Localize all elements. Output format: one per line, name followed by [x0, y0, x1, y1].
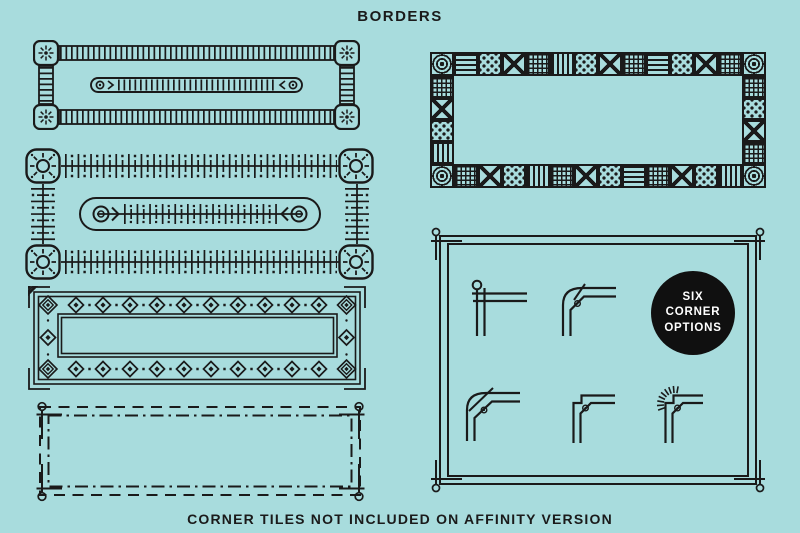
dots-tile — [742, 98, 766, 120]
dots-tile — [598, 164, 622, 188]
hstripe-tile — [454, 52, 478, 76]
dots-tile — [430, 120, 454, 142]
x-tile — [670, 164, 694, 188]
hstripe-tile — [622, 164, 646, 188]
tile-col-right — [742, 76, 766, 164]
x-tile — [430, 98, 454, 120]
dots-tile — [670, 52, 694, 76]
curved-spur-corner-icon — [457, 380, 527, 450]
grid-tile — [430, 76, 454, 98]
footer-note: CORNER TILES NOT INCLUDED ON AFFINITY VE… — [0, 511, 800, 527]
x-tile — [502, 52, 526, 76]
hstripe-tile — [646, 52, 670, 76]
x-tile — [574, 164, 598, 188]
page-title: BORDERS — [0, 8, 800, 25]
borders-poster: BORDERS — [0, 0, 800, 533]
bullseye-tile — [742, 164, 766, 188]
bullseye-tile — [430, 52, 454, 76]
grid-tile — [742, 142, 766, 164]
sunray-chamfer-corner-icon — [640, 378, 710, 448]
dots-tile — [574, 52, 598, 76]
x-tile — [478, 164, 502, 188]
vstripe-tile — [718, 164, 742, 188]
tile-col-left — [430, 76, 454, 164]
six-corner-options-badge: SIX CORNER OPTIONS — [651, 271, 735, 355]
rounded-chamfer-corner-icon — [553, 275, 623, 345]
badge-line-1: SIX — [683, 290, 704, 306]
panel-frame-border-icon — [428, 226, 768, 494]
vstripe-tile — [526, 164, 550, 188]
diamond-motif-border-icon — [28, 286, 366, 390]
grid-tile — [718, 52, 742, 76]
tile-row-top — [430, 52, 766, 76]
dots-tile — [694, 164, 718, 188]
bullseye-tile — [742, 52, 766, 76]
corner-options-panel: SIX CORNER OPTIONS — [428, 226, 768, 494]
grid-tile — [742, 76, 766, 98]
dashed-line-border-icon — [33, 400, 368, 503]
dots-tile — [478, 52, 502, 76]
grid-tile — [550, 164, 574, 188]
x-tile — [694, 52, 718, 76]
badge-line-2: CORNER — [666, 305, 721, 321]
sunburst-corner-border-icon — [25, 148, 375, 280]
tile-row-bottom — [430, 164, 766, 188]
vstripe-tile — [550, 52, 574, 76]
railroad-track-border-icon — [33, 40, 360, 130]
vstripe-tile — [430, 142, 454, 164]
badge-line-3: OPTIONS — [664, 321, 721, 337]
stepped-chamfer-corner-icon — [552, 382, 622, 452]
grid-tile — [526, 52, 550, 76]
circle-cross-corner-icon — [464, 275, 534, 345]
grid-tile — [622, 52, 646, 76]
grid-tile — [646, 164, 670, 188]
dots-tile — [502, 164, 526, 188]
patchwork-tile-border-icon — [430, 52, 766, 188]
grid-tile — [454, 164, 478, 188]
x-tile — [598, 52, 622, 76]
bullseye-tile — [430, 164, 454, 188]
x-tile — [742, 120, 766, 142]
